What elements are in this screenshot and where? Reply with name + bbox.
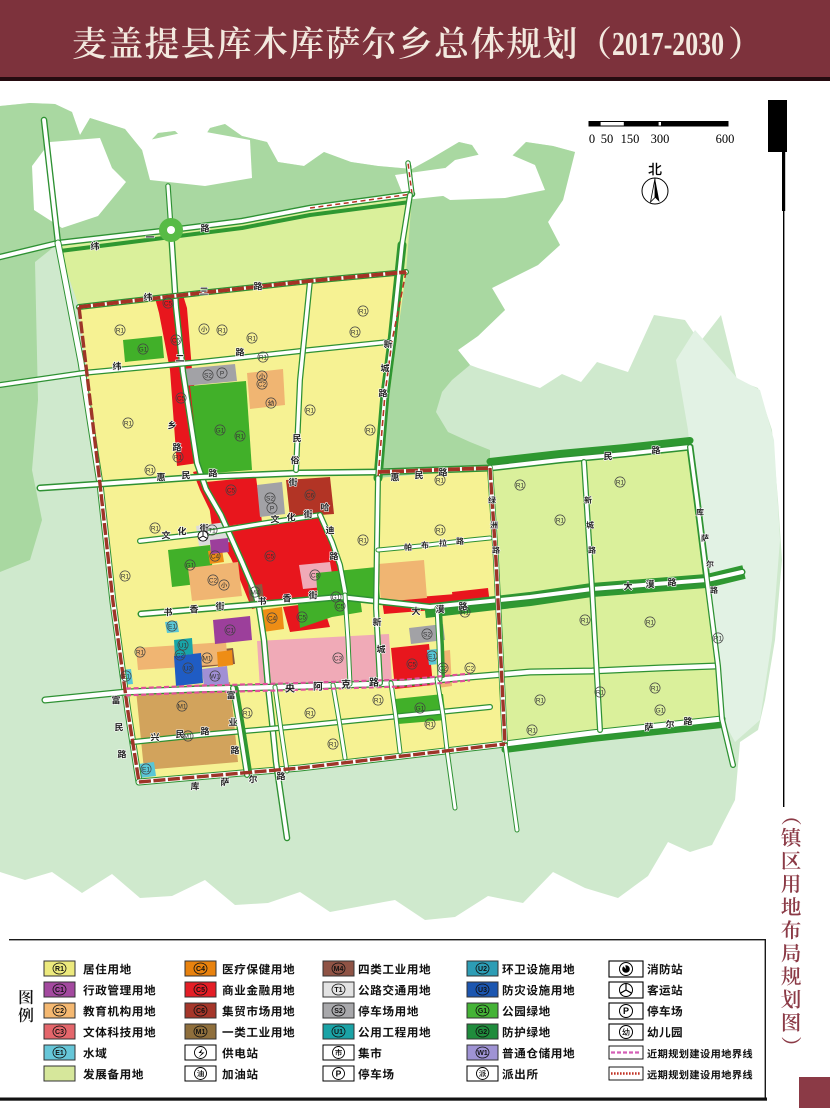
svg-text:M1: M1	[177, 703, 186, 710]
svg-text:R1: R1	[596, 689, 605, 696]
svg-text:C5: C5	[336, 603, 345, 610]
svg-text:R1: R1	[359, 308, 368, 315]
svg-text:R1: R1	[116, 327, 125, 334]
svg-text:G1: G1	[478, 1008, 487, 1015]
svg-text:U3: U3	[478, 987, 487, 994]
svg-text:R1: R1	[146, 467, 155, 474]
svg-text:R1: R1	[248, 335, 257, 342]
svg-text:R1: R1	[366, 427, 375, 434]
svg-text:S2: S2	[334, 1008, 343, 1015]
svg-text:C1: C1	[226, 627, 235, 634]
svg-text:R1: R1	[306, 710, 315, 717]
svg-text:R1: R1	[236, 433, 245, 440]
svg-text:R1: R1	[374, 697, 383, 704]
svg-text:R1: R1	[351, 329, 360, 336]
svg-text:R1: R1	[259, 354, 268, 361]
svg-text:P: P	[220, 370, 224, 377]
svg-text:W1: W1	[210, 673, 220, 680]
svg-text:R1: R1	[243, 710, 252, 717]
svg-text:P: P	[623, 1006, 629, 1016]
svg-text:C5: C5	[298, 614, 307, 621]
svg-text:C5: C5	[266, 553, 275, 560]
svg-text:C5: C5	[177, 395, 186, 402]
svg-text:C5: C5	[408, 661, 417, 668]
svg-text:U3: U3	[184, 665, 193, 672]
svg-text:R1: R1	[359, 537, 368, 544]
svg-text:M1: M1	[183, 733, 192, 740]
svg-text:50: 50	[601, 132, 614, 146]
svg-text:R1: R1	[528, 727, 537, 734]
svg-text:600: 600	[716, 132, 735, 146]
svg-text:R1: R1	[426, 721, 435, 728]
svg-text:C2: C2	[439, 665, 448, 672]
svg-text:R1: R1	[516, 482, 525, 489]
svg-text:300: 300	[651, 132, 670, 146]
svg-text:G1: G1	[216, 427, 225, 434]
svg-text:150: 150	[621, 132, 640, 146]
svg-text:R1: R1	[121, 573, 130, 580]
svg-text:G1: G1	[656, 707, 665, 714]
svg-text:R1: R1	[714, 635, 723, 642]
svg-text:C2: C2	[55, 1008, 64, 1015]
svg-text:G1: G1	[416, 705, 425, 712]
svg-text:C4: C4	[211, 553, 220, 560]
svg-text:R1: R1	[616, 479, 625, 486]
svg-text:E1: E1	[122, 673, 130, 680]
svg-text:R1: R1	[124, 420, 133, 427]
svg-text:M1: M1	[202, 655, 211, 662]
svg-text:G1: G1	[139, 346, 148, 353]
svg-text:C2: C2	[258, 381, 267, 388]
svg-text:C4: C4	[268, 615, 277, 622]
svg-text:M1: M1	[196, 1029, 206, 1036]
svg-text:2017-2030: 2017-2030	[612, 26, 724, 63]
svg-text:P: P	[336, 1069, 342, 1079]
svg-text:S2: S2	[266, 495, 274, 502]
svg-text:R1: R1	[461, 609, 470, 616]
svg-text:E1: E1	[142, 766, 150, 773]
svg-text:R1: R1	[151, 525, 160, 532]
svg-text:W1: W1	[477, 1050, 488, 1057]
svg-text:R1: R1	[536, 697, 545, 704]
svg-text:C4: C4	[196, 966, 205, 973]
svg-text:C3: C3	[55, 1029, 64, 1036]
svg-text:G1: G1	[332, 594, 341, 601]
svg-text:C6: C6	[306, 492, 315, 499]
svg-text:C3: C3	[334, 655, 343, 662]
svg-text:T1: T1	[334, 987, 342, 994]
svg-text:T1: T1	[208, 527, 216, 534]
svg-text:R1: R1	[136, 649, 145, 656]
svg-text:0: 0	[589, 132, 595, 146]
svg-text:R1: R1	[436, 527, 445, 534]
svg-text:C1: C1	[55, 987, 64, 994]
svg-text:M4: M4	[250, 589, 259, 596]
svg-text:U1: U1	[334, 1029, 343, 1036]
svg-text:C2: C2	[209, 577, 218, 584]
svg-text:R1: R1	[646, 619, 655, 626]
svg-text:C5: C5	[172, 337, 181, 344]
svg-text:R1: R1	[651, 685, 660, 692]
svg-text:R1: R1	[329, 741, 338, 748]
svg-text:E1: E1	[55, 1050, 64, 1057]
svg-text:U2: U2	[478, 966, 487, 973]
svg-text:G2: G2	[478, 1029, 487, 1036]
svg-text:C5: C5	[227, 487, 236, 494]
svg-text:S2: S2	[204, 372, 212, 379]
svg-text:C5: C5	[196, 987, 205, 994]
svg-text:M4: M4	[334, 966, 344, 973]
svg-text:R1: R1	[556, 517, 565, 524]
svg-text:G1: G1	[186, 562, 195, 569]
svg-text:R1: R1	[306, 407, 315, 414]
svg-text:R1: R1	[436, 477, 445, 484]
svg-text:C5: C5	[164, 300, 173, 307]
svg-text:R1: R1	[581, 617, 590, 624]
svg-text:R1: R1	[174, 454, 183, 461]
svg-text:P: P	[270, 505, 274, 512]
svg-text:C3: C3	[311, 572, 320, 579]
svg-text:C2: C2	[466, 665, 475, 672]
svg-text:C2: C2	[176, 652, 185, 659]
svg-text:S2: S2	[423, 631, 431, 638]
svg-text:R1: R1	[218, 327, 227, 334]
svg-text:E1: E1	[168, 623, 176, 630]
svg-text:E1: E1	[428, 653, 436, 660]
svg-text:R1: R1	[55, 966, 64, 973]
svg-text:C6: C6	[196, 1008, 205, 1015]
svg-text:U1: U1	[179, 642, 188, 649]
